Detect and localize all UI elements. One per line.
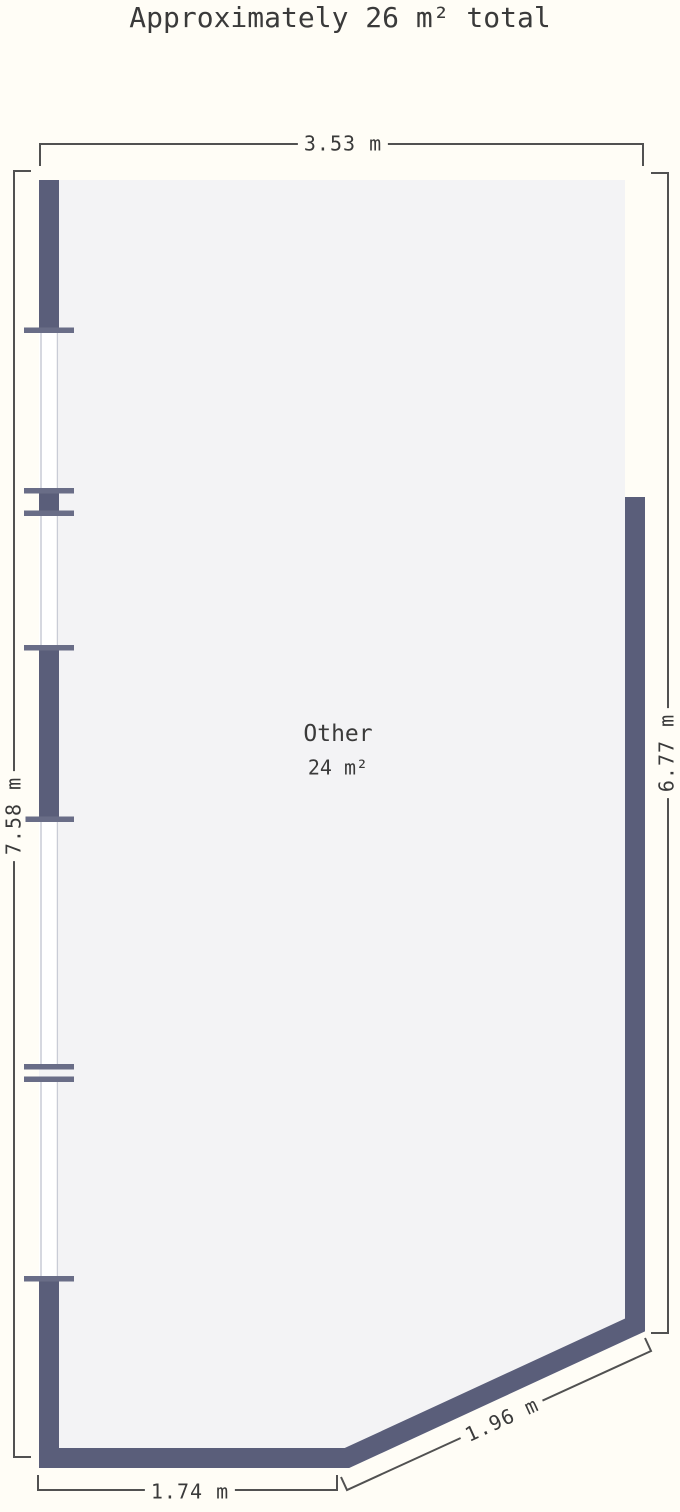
window-sill-cap [24, 488, 74, 494]
room-floor-fill [39, 180, 625, 1452]
window-sill-cap [24, 1276, 74, 1282]
window-sill-cap [24, 511, 74, 517]
dimension-label-bottom: 1.74 m [145, 1481, 235, 1504]
dimension-label-top: 3.53 m [298, 133, 388, 156]
dimension-label-left: 7.58 m [3, 771, 26, 861]
window-sill-cap [24, 328, 74, 334]
window-sill-cap [24, 645, 74, 651]
room-area-label: 24 m² [308, 757, 368, 780]
floorplan-canvas: Approximately 26 m² total 3.53 m 7.58 m … [0, 0, 680, 1512]
window-left-1 [39, 333, 59, 488]
window-left-4 [39, 1082, 59, 1276]
page-title: Approximately 26 m² total [0, 2, 680, 34]
dimension-label-right: 6.77 m [656, 708, 679, 798]
window-left-2 [39, 516, 59, 645]
window-left-3 [39, 822, 59, 1064]
window-sill-cap [24, 1077, 74, 1083]
room-name-label: Other [303, 721, 372, 747]
window-sill-cap [24, 817, 74, 823]
window-sill-cap [24, 1064, 74, 1070]
